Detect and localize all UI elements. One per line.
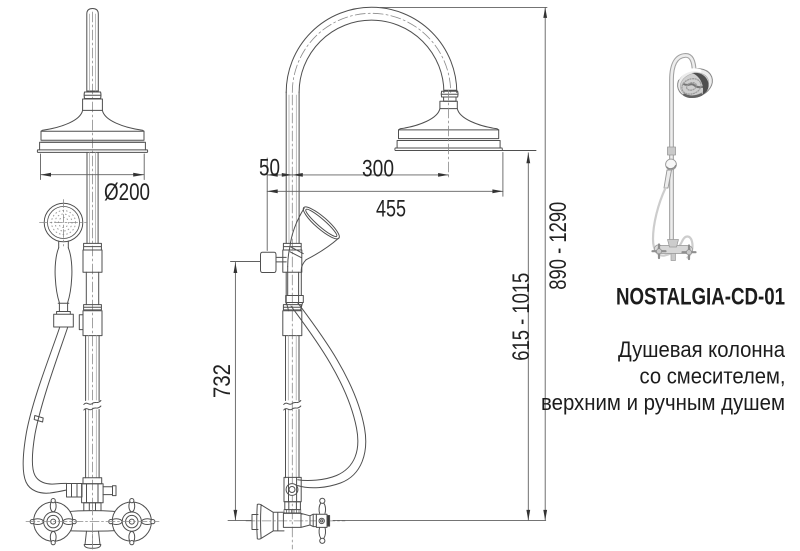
svg-text:300: 300 xyxy=(362,156,394,183)
svg-text:732: 732 xyxy=(209,364,236,398)
svg-text:со смесителем,: со смесителем, xyxy=(640,363,786,388)
svg-text:890 - 1290: 890 - 1290 xyxy=(545,202,572,290)
svg-text:455: 455 xyxy=(376,196,406,223)
svg-text:Душевая колонна: Душевая колонна xyxy=(618,337,786,362)
svg-text:50: 50 xyxy=(259,155,280,182)
svg-text:NOSTALGIA-CD-01: NOSTALGIA-CD-01 xyxy=(616,283,785,310)
svg-text:Ø200: Ø200 xyxy=(104,179,150,206)
svg-text:верхним и ручным душем: верхним и ручным душем xyxy=(541,390,785,415)
svg-text:615 - 1015: 615 - 1015 xyxy=(508,273,535,361)
